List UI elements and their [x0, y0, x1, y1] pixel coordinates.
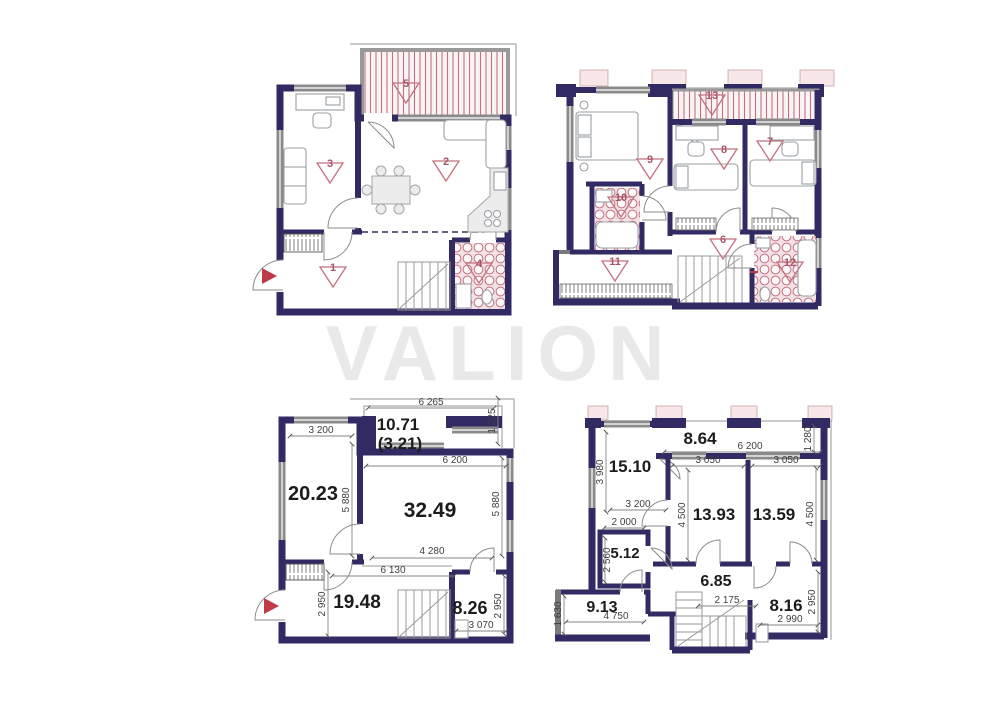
- dim-label: 4 280: [419, 546, 444, 557]
- bathtub: [798, 240, 816, 296]
- area-label: 10.71: [377, 415, 420, 434]
- area-label: 6.85: [700, 573, 731, 590]
- pillow: [802, 162, 814, 184]
- pillow: [676, 166, 688, 188]
- wardrobe: [286, 564, 324, 580]
- dim-label: 6 130: [380, 565, 405, 576]
- dim-label: 5 880: [341, 487, 352, 512]
- vent-block: [808, 406, 832, 420]
- pillow: [578, 115, 591, 135]
- dim-label: 3 050: [773, 455, 798, 466]
- sofa: [284, 148, 306, 204]
- plan-lower-right: 6 200 1 280 3 980 3 200 3 050 3 050 4 50…: [553, 406, 832, 650]
- area-label: (3.21): [378, 434, 422, 453]
- room-marker-2: 2: [433, 156, 459, 181]
- balcony-13: [672, 90, 818, 122]
- floor-plans: 1 2 3 4 5: [0, 0, 1000, 718]
- room-number: 1: [330, 262, 336, 274]
- area-label: 8.26: [452, 598, 487, 618]
- bathtub: [596, 222, 638, 248]
- balcony-door-gap: [364, 113, 392, 123]
- stairs: [398, 590, 450, 638]
- wc-door-gap: [645, 546, 653, 572]
- wardrobe: [676, 218, 716, 230]
- wardrobe: [284, 234, 322, 252]
- vent-block: [728, 70, 762, 86]
- area-label: 9.13: [586, 599, 617, 616]
- sink: [756, 238, 770, 248]
- vent-block: [588, 406, 608, 420]
- vent-block: [580, 70, 608, 86]
- room-number: 4: [476, 258, 483, 270]
- area-label: 5.12: [610, 545, 639, 562]
- room-number: 6: [720, 234, 726, 246]
- wardrobe: [752, 218, 798, 230]
- chair: [313, 113, 331, 128]
- dim-label: 5 880: [491, 491, 502, 516]
- desk: [770, 126, 814, 140]
- dim-label: 6 200: [442, 455, 467, 466]
- desk: [676, 126, 718, 140]
- corner-sofa-side: [486, 120, 506, 168]
- area-label: 13.93: [693, 505, 736, 524]
- dim-label: 2 950: [493, 593, 504, 618]
- toilet: [482, 290, 492, 304]
- area-label: 8.64: [683, 429, 717, 448]
- room-number: 12: [784, 257, 796, 269]
- dim-label: 3 980: [595, 459, 606, 484]
- dim-label: 1 280: [803, 426, 814, 451]
- room-marker-9: 9: [637, 154, 663, 179]
- pillow: [578, 137, 591, 157]
- room-number: 5: [403, 78, 409, 90]
- dim-label: 4 500: [677, 502, 688, 527]
- kitchen-sink: [494, 172, 506, 190]
- dim-label: 3 200: [308, 425, 333, 436]
- dim-label: 6 265: [418, 397, 443, 408]
- chair: [782, 142, 798, 156]
- room-number: 3: [327, 158, 333, 170]
- plan-upper-right: 6 7 8 9 10 11 12 13: [553, 70, 834, 306]
- stairs: [678, 256, 742, 304]
- vent-block: [800, 70, 834, 86]
- dim-label: 1 630: [553, 601, 564, 626]
- room-marker-1: 1: [320, 262, 346, 287]
- dim-label: 2 950: [807, 589, 818, 614]
- nightstand: [580, 163, 588, 171]
- loggia-floor-hatch: [560, 284, 672, 298]
- room-number: 13: [706, 90, 718, 102]
- dim-label: 3 200: [625, 499, 650, 510]
- toilet: [760, 287, 770, 301]
- dim-label: 6 200: [737, 441, 762, 452]
- vent-block: [652, 70, 686, 86]
- stairs: [398, 262, 450, 310]
- room-number: 10: [615, 192, 627, 204]
- dim-label: 2 000: [611, 517, 636, 528]
- area-label: 13.59: [753, 505, 796, 524]
- dim-label: 2 950: [317, 591, 328, 616]
- monitor: [326, 97, 340, 105]
- dim-label: 2 175: [714, 595, 739, 606]
- plan-lower-left: 6 265 1 225 3 200 5 880 6 200 5 880 4 28…: [255, 397, 514, 640]
- dining-table: [372, 176, 410, 204]
- area-label: 32.49: [404, 499, 457, 522]
- room-number: 2: [443, 156, 449, 168]
- area-label: 15.10: [609, 457, 652, 476]
- vent-block: [731, 406, 757, 420]
- chair: [688, 142, 704, 156]
- vent-block: [656, 406, 682, 420]
- area-label: 19.48: [333, 592, 381, 613]
- room-marker-3: 3: [317, 158, 343, 183]
- plan-upper-left: 1 2 3 4 5: [253, 44, 516, 312]
- dim-label: 2 990: [777, 614, 802, 625]
- dim-label: 1 225: [487, 408, 498, 433]
- balcony-5: [362, 50, 508, 118]
- room-number: 11: [609, 256, 621, 268]
- area-label: 8.16: [769, 596, 802, 615]
- washing-machine: [456, 284, 471, 308]
- area-label: 20.23: [288, 483, 338, 505]
- floor-plan-page: VALION: [0, 0, 1000, 718]
- room-number: 9: [647, 154, 653, 166]
- dim-label: 3 050: [695, 455, 720, 466]
- dim-label: 3 070: [468, 620, 493, 631]
- washing-machine: [455, 620, 468, 638]
- room-marker-11: 11: [602, 256, 628, 281]
- room-number: 8: [721, 144, 727, 156]
- washing-machine: [756, 624, 768, 642]
- nightstand: [580, 101, 588, 109]
- dim-label: 4 500: [805, 501, 816, 526]
- room-number: 7: [767, 136, 773, 148]
